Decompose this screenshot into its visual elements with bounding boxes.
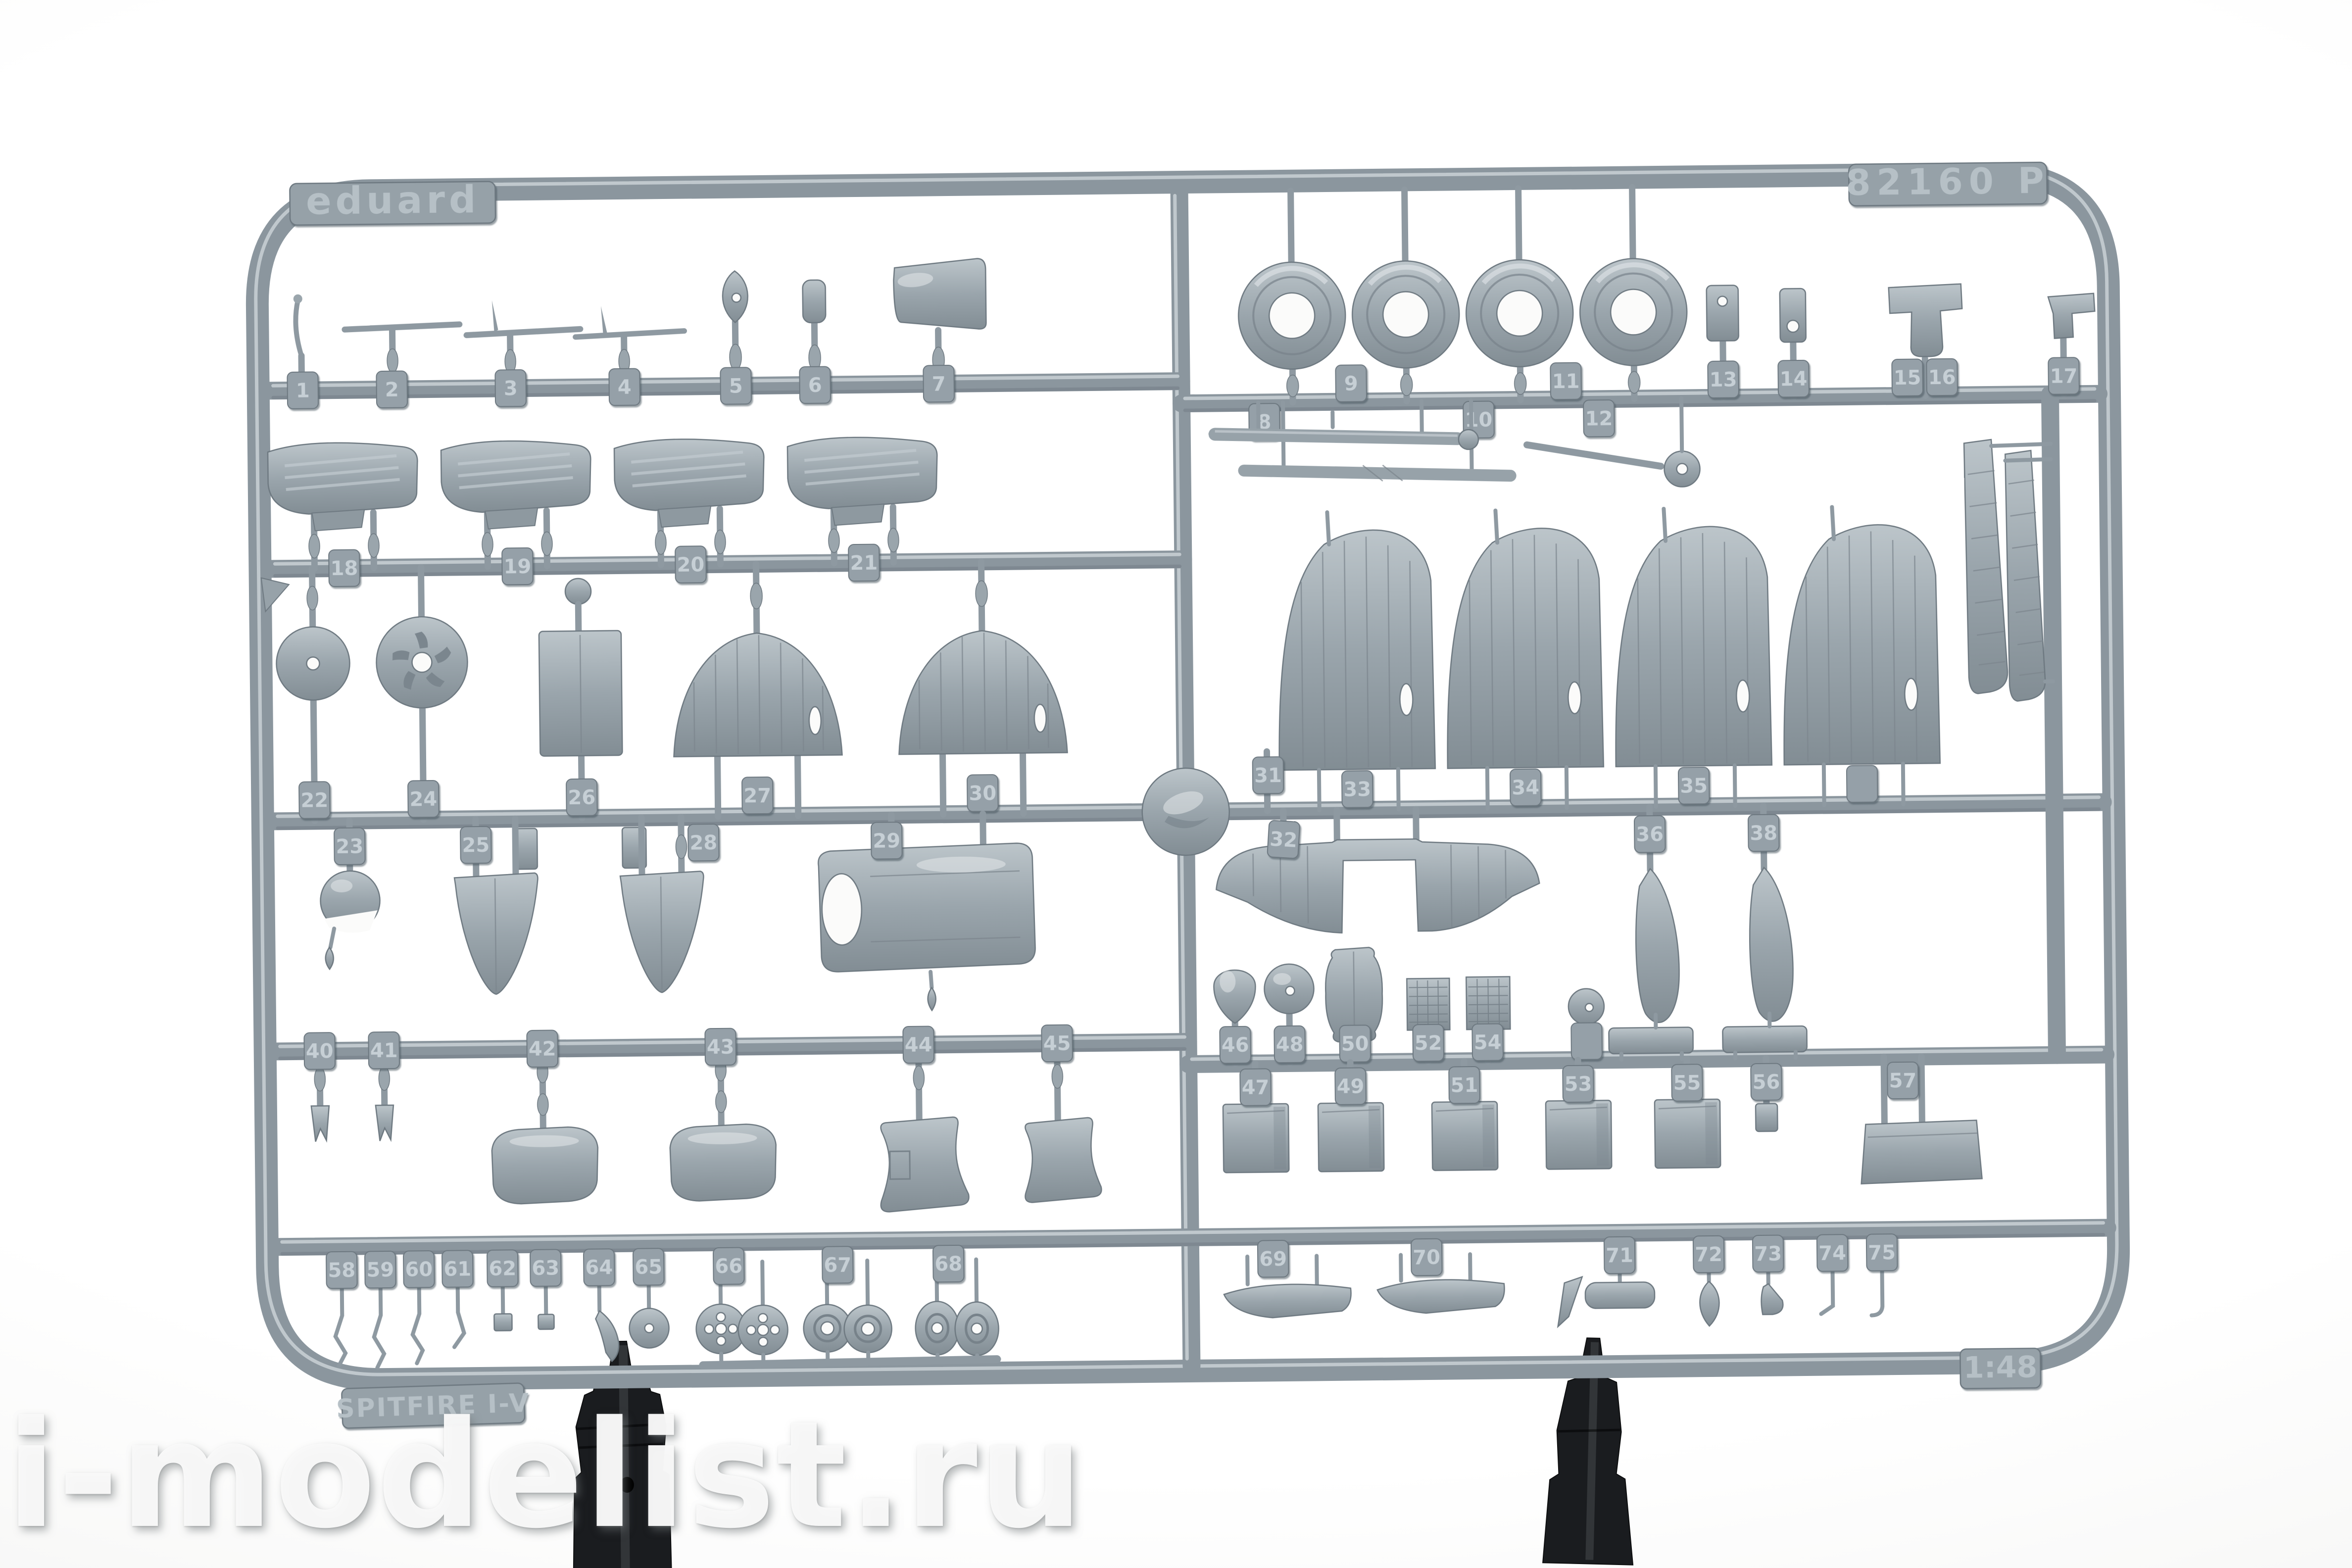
svg-text:4: 4 [618,376,632,399]
svg-text:14: 14 [1780,368,1808,391]
radiator-grille [1466,977,1510,1029]
svg-text:6: 6 [808,374,822,397]
svg-text:31: 31 [1254,764,1282,787]
svg-text:38: 38 [1750,822,1777,845]
svg-text:63: 63 [532,1257,559,1280]
svg-text:12: 12 [1585,407,1613,431]
svg-text:61: 61 [443,1258,471,1281]
svg-text:71: 71 [1606,1244,1633,1268]
svg-text:59: 59 [366,1259,394,1282]
svg-text:11: 11 [1552,370,1580,393]
svg-text:29: 29 [873,830,900,853]
svg-text:19: 19 [503,555,531,579]
svg-text:21: 21 [850,552,878,575]
svg-text:5: 5 [729,375,743,397]
svg-text:48: 48 [1276,1033,1304,1057]
svg-text:69: 69 [1259,1248,1287,1271]
row-long-strips [1964,439,2054,702]
mold-code-label: 82160 P [1846,160,2050,203]
svg-text:24: 24 [409,788,437,811]
svg-text:20: 20 [677,553,704,577]
svg-text:72: 72 [1695,1243,1722,1267]
svg-text:30: 30 [969,782,996,805]
row-bottom-fittings: 69 70 71 72 73 74 75 [1224,1234,1898,1331]
svg-text:10: 10 [1465,409,1492,432]
svg-text:13: 13 [1710,368,1737,392]
svg-text:1: 1 [296,380,310,402]
svg-text:55: 55 [1673,1072,1701,1095]
row-discs-and-domes: 22 24 26 27 30 [261,561,1068,822]
svg-text:53: 53 [1564,1073,1592,1096]
svg-text:35: 35 [1680,775,1708,798]
brand-label: eduard [306,177,480,223]
svg-text:64: 64 [585,1256,613,1279]
svg-text:3: 3 [504,377,518,400]
svg-text:56: 56 [1752,1071,1780,1094]
svg-text:32: 32 [1269,828,1298,852]
svg-text:73: 73 [1754,1242,1782,1266]
svg-text:7: 7 [931,373,945,395]
svg-text:23: 23 [336,835,363,858]
row-cowling-parts: 23 25 28 29 [320,813,1036,1017]
scale-label: 1:48 [1963,1350,2038,1385]
svg-text:49: 49 [1336,1075,1364,1098]
svg-text:47: 47 [1242,1076,1270,1099]
svg-text:45: 45 [1043,1032,1071,1056]
svg-text:2: 2 [385,379,399,401]
svg-text:50: 50 [1341,1032,1369,1056]
sprue: eduard 82160 P SPITFIRE I-V 1:48 1 [254,159,2121,1568]
svg-text:52: 52 [1415,1032,1442,1055]
svg-text:62: 62 [489,1257,516,1280]
row-cockpit-boxes: 47 49 51 53 55 56 57 [1223,1056,1982,1190]
row-wing-panels: 33 34 35 [1276,506,1940,811]
svg-text:51: 51 [1450,1074,1478,1097]
svg-text:28: 28 [689,832,717,855]
svg-text:16: 16 [1928,366,1956,390]
svg-text:15: 15 [1894,366,1921,390]
svg-text:36: 36 [1636,823,1664,846]
svg-text:67: 67 [824,1254,851,1277]
svg-text:66: 66 [715,1255,742,1278]
svg-text:17: 17 [2050,365,2078,388]
lower-wing: 31 32 [1215,749,1540,934]
svg-text:68: 68 [934,1253,962,1276]
svg-text:9: 9 [1344,372,1358,395]
svg-text:43: 43 [707,1036,735,1059]
svg-text:40: 40 [306,1040,334,1063]
svg-text:54: 54 [1474,1031,1502,1054]
row-undercarriage-legs [1215,398,1700,491]
svg-text:26: 26 [568,786,595,810]
watermark: i-modelist.ru [6,1402,1084,1549]
svg-text:25: 25 [462,834,490,857]
row-hubs-small-parts: 58 59 60 61 62 63 64 65 66 67 68 [326,1245,999,1369]
svg-text:18: 18 [330,557,358,581]
svg-text:65: 65 [635,1256,662,1279]
svg-text:60: 60 [405,1258,433,1281]
svg-text:41: 41 [370,1039,398,1063]
svg-text:44: 44 [905,1033,932,1057]
svg-text:58: 58 [328,1259,355,1282]
row-tailplanes: 36 38 [1607,805,1807,1060]
svg-text:70: 70 [1413,1246,1440,1270]
row-spinners: 46 48 50 52 54 [1214,945,1605,1064]
svg-text:34: 34 [1512,777,1539,800]
svg-text:57: 57 [1889,1070,1916,1093]
svg-text:42: 42 [529,1037,556,1061]
radiator-grille [1407,978,1450,1030]
photo-stage: eduard 82160 P SPITFIRE I-V 1:48 1 [0,0,2352,1568]
svg-text:75: 75 [1868,1241,1896,1265]
svg-text:46: 46 [1222,1034,1249,1057]
sprue-photo: eduard 82160 P SPITFIRE I-V 1:48 1 [0,0,2352,1568]
svg-text:22: 22 [300,789,328,812]
svg-text:74: 74 [1818,1242,1846,1265]
svg-text:33: 33 [1343,778,1371,801]
svg-text:27: 27 [743,784,771,808]
